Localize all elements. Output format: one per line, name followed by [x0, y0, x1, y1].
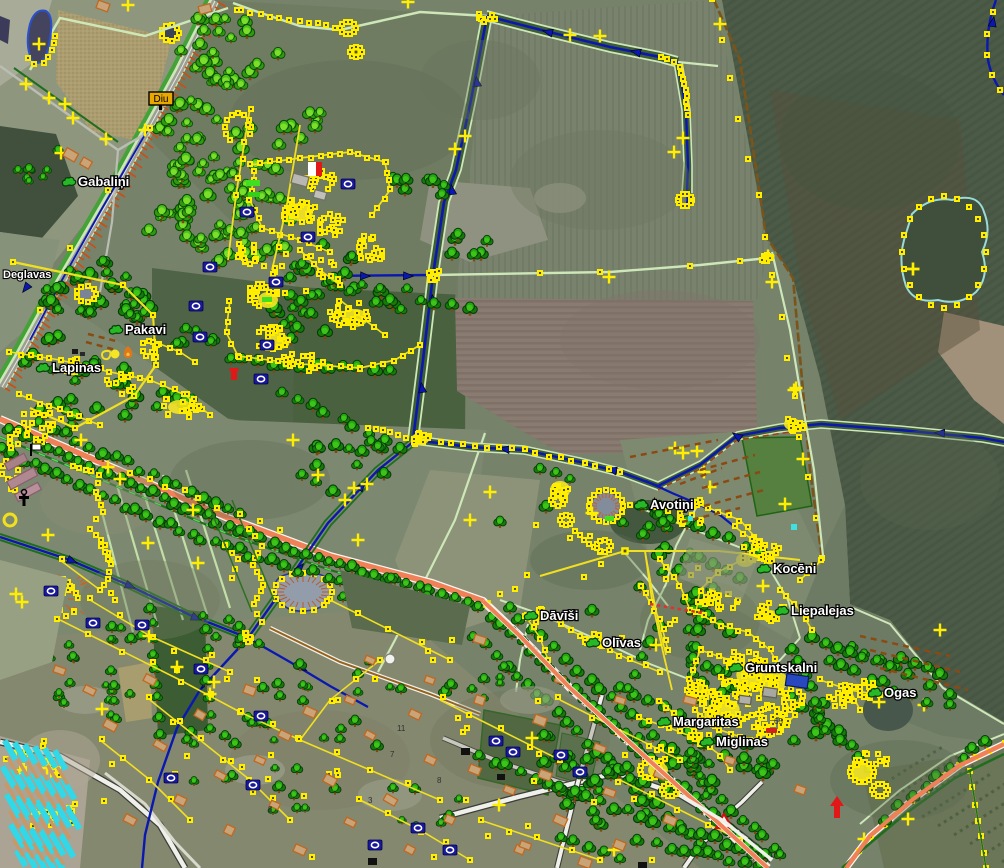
svg-text:7: 7	[390, 750, 395, 759]
svg-text:65: 65	[774, 717, 783, 726]
svg-text:Gruntskalni: Gruntskalni	[745, 660, 817, 675]
svg-text:8: 8	[437, 776, 442, 785]
svg-text:Ogas: Ogas	[884, 685, 917, 700]
svg-text:Miglinas: Miglinas	[716, 734, 768, 749]
svg-text:8: 8	[268, 805, 273, 814]
svg-text:Gabaliņi: Gabaliņi	[78, 174, 129, 189]
svg-text:Pakavi: Pakavi	[125, 322, 166, 337]
svg-text:Dāvīši: Dāvīši	[540, 608, 578, 623]
svg-text:Kocēni: Kocēni	[773, 561, 816, 576]
svg-text:Lapinas: Lapinas	[52, 360, 101, 375]
svg-text:3: 3	[368, 796, 373, 805]
svg-text:11: 11	[397, 724, 406, 733]
svg-text:Margaritas: Margaritas	[673, 714, 739, 729]
svg-text:Deglavas: Deglavas	[3, 269, 51, 281]
svg-text:Diu: Diu	[153, 94, 168, 105]
svg-text:Olīvas: Olīvas	[602, 635, 641, 650]
svg-text:Liepalejas: Liepalejas	[791, 603, 854, 618]
svg-text:Avotiņi: Avotiņi	[650, 497, 694, 512]
